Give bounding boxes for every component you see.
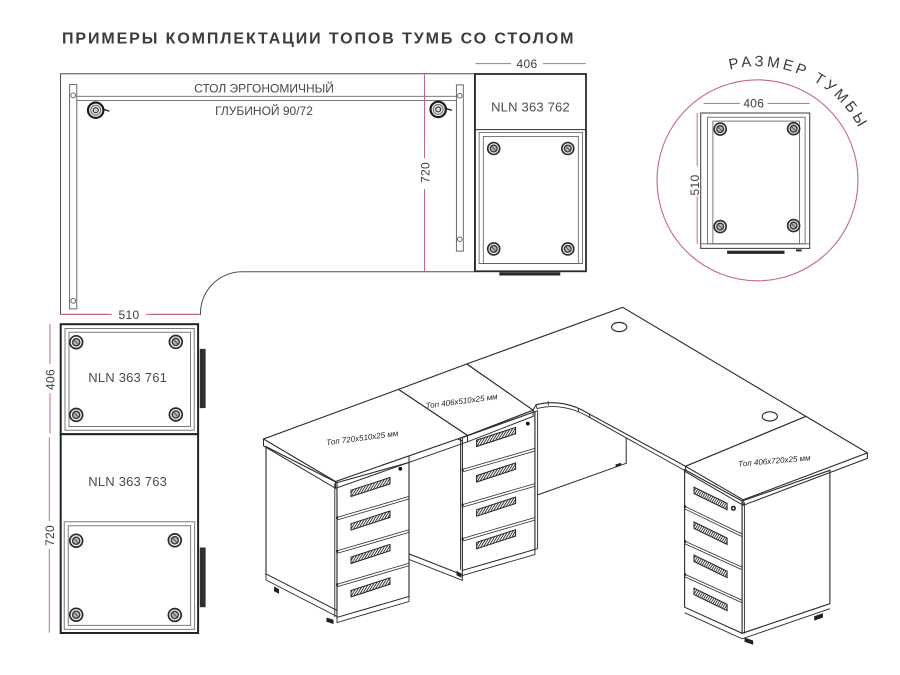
svg-text:NLN 363 761: NLN 363 761 bbox=[88, 370, 167, 385]
svg-text:720: 720 bbox=[43, 525, 57, 546]
svg-text:406: 406 bbox=[743, 97, 764, 111]
svg-text:СТОЛ ЭРГОНОМИЧНЫЙ: СТОЛ ЭРГОНОМИЧНЫЙ bbox=[194, 81, 334, 96]
svg-text:510: 510 bbox=[688, 175, 702, 196]
svg-text:720: 720 bbox=[419, 162, 433, 183]
svg-text:NLN 363 763: NLN 363 763 bbox=[88, 474, 167, 489]
svg-text:ГЛУБИНОЙ 90/72: ГЛУБИНОЙ 90/72 bbox=[215, 103, 313, 118]
svg-text:ПРИМЕРЫ КОМПЛЕКТАЦИИ ТОПОВ ТУМ: ПРИМЕРЫ КОМПЛЕКТАЦИИ ТОПОВ ТУМБ СО СТОЛО… bbox=[62, 31, 575, 48]
svg-text:406: 406 bbox=[517, 57, 538, 71]
svg-text:510: 510 bbox=[119, 308, 140, 322]
svg-text:NLN 363 762: NLN 363 762 bbox=[491, 100, 570, 115]
svg-text:406: 406 bbox=[44, 369, 58, 390]
